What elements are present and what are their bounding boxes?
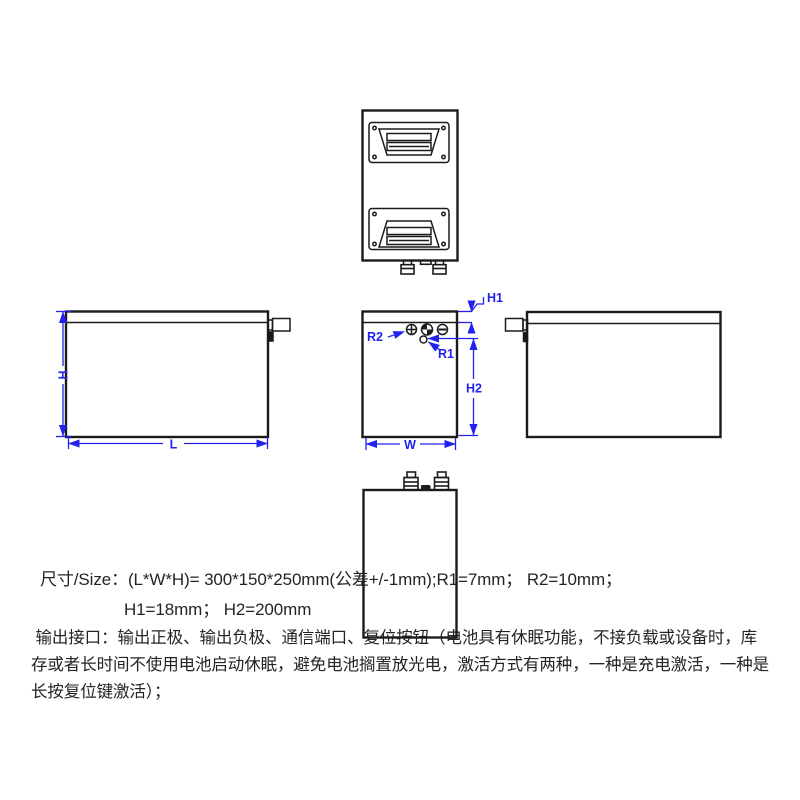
right-side-view	[506, 312, 721, 437]
terminal-body	[401, 265, 414, 274]
dim-label-R1: R1	[438, 347, 454, 361]
dimension-H1: H1	[458, 291, 503, 331]
dimension-L: L	[69, 437, 268, 452]
dimension-H2: H2	[428, 339, 482, 436]
dim-label-W: W	[404, 438, 416, 452]
dimension-H: H	[56, 312, 71, 437]
front-view	[66, 312, 290, 438]
end-view-terminals	[404, 472, 449, 490]
top-view-terminals	[401, 261, 446, 275]
side-connector-right	[268, 319, 290, 342]
side-connector-left	[506, 319, 528, 342]
comm-port-icon	[422, 324, 433, 335]
upper-handle	[369, 123, 449, 163]
reset-button-icon	[420, 336, 427, 343]
right-view-outline	[527, 312, 721, 437]
terminal-body	[433, 265, 446, 274]
terminal-end-outline	[364, 490, 457, 638]
positive-terminal-icon	[407, 325, 417, 335]
dimension-W: W	[366, 438, 456, 452]
center-bump	[421, 485, 431, 490]
dimension-R1: R1	[429, 342, 455, 361]
battery-dimension-drawing-page: 尺寸/Size：(L*W*H)= 300*150*250mm(公差+/-1mm)…	[0, 0, 800, 800]
terminal-body	[404, 478, 418, 491]
dim-label-H1: H1	[487, 291, 503, 305]
dim-label-R2: R2	[367, 330, 383, 344]
top-view	[363, 111, 458, 275]
negative-terminal-icon	[438, 325, 448, 335]
output-ports	[407, 324, 448, 343]
technical-drawing-svg: H L	[0, 0, 800, 800]
terminal-end-view	[364, 472, 457, 638]
terminal-cap	[407, 472, 416, 478]
terminal-body	[435, 478, 449, 491]
vent-tab	[421, 261, 432, 265]
lower-handle	[369, 209, 449, 250]
dim-label-H2: H2	[466, 382, 482, 396]
dim-label-L: L	[170, 438, 178, 452]
front-view-outline	[66, 312, 268, 438]
dim-label-H: H	[57, 370, 71, 379]
terminal-cap	[438, 472, 447, 478]
dimension-R2: R2	[367, 330, 405, 344]
